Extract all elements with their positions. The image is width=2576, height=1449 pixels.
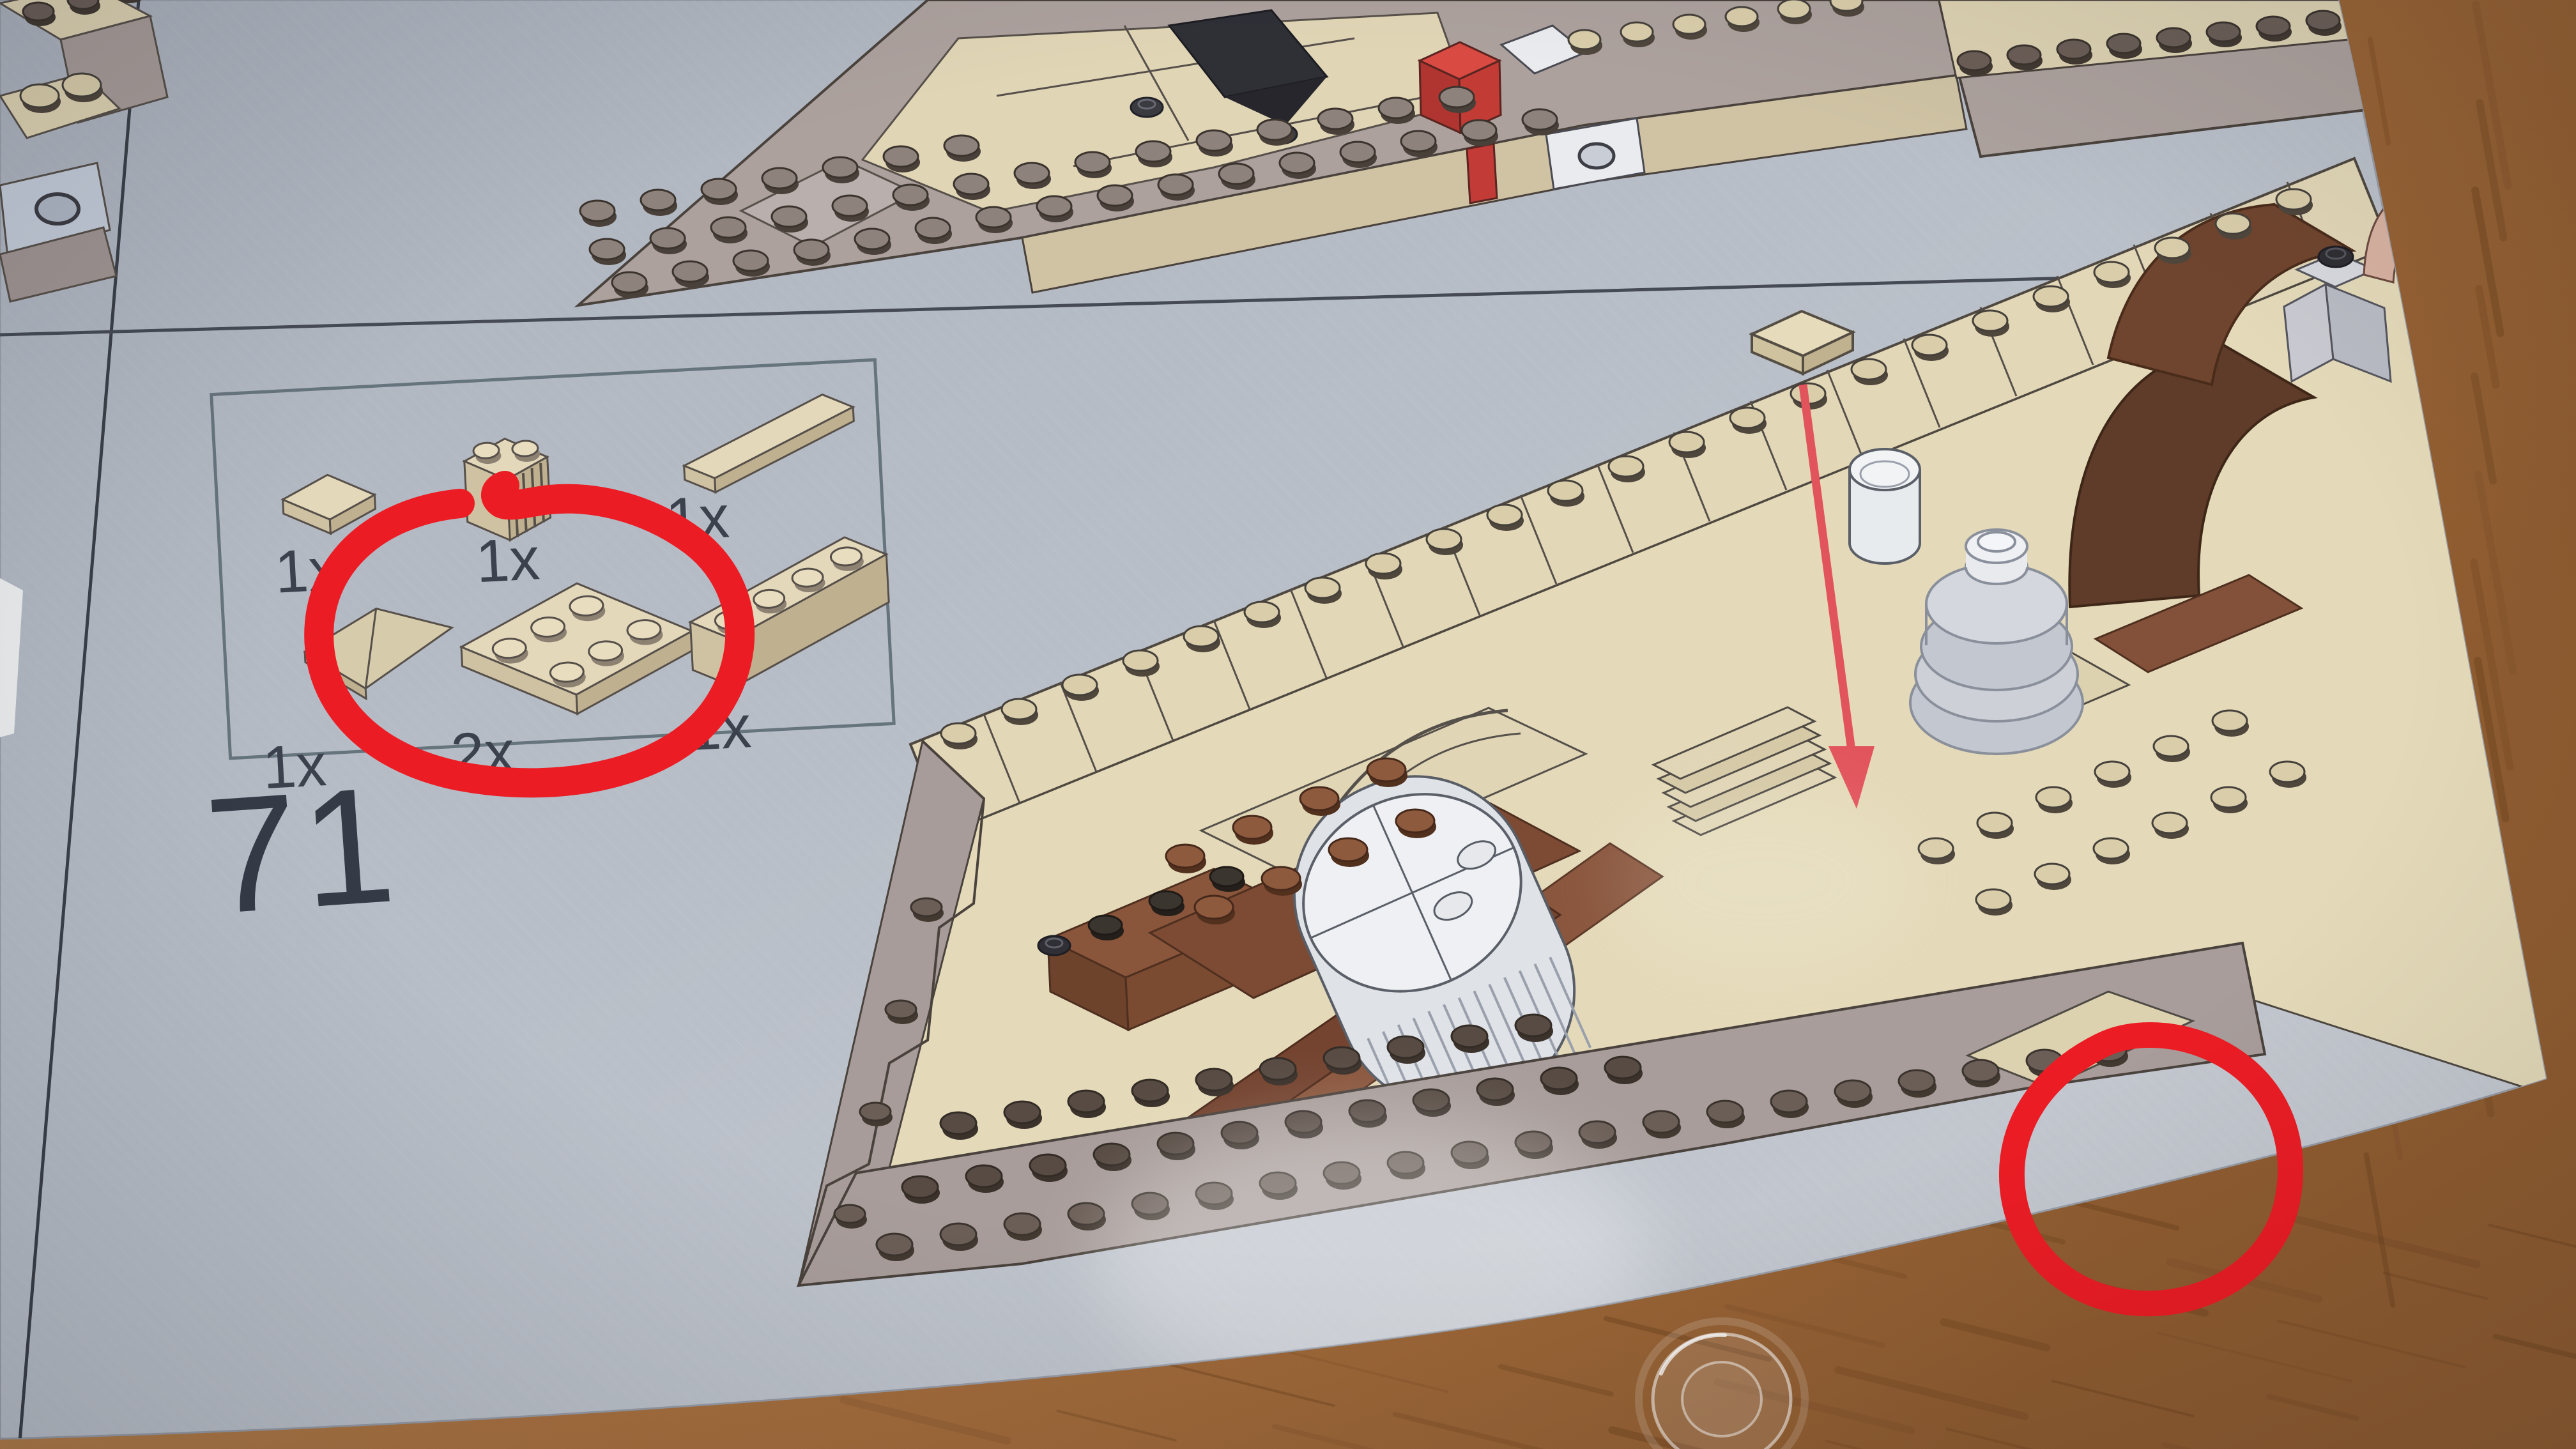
photo-of-lego-instruction-page: 1x 1x 1x 1x 2x 1x 71 — [0, 0, 2576, 1449]
photo-vignette — [0, 0, 2576, 1449]
